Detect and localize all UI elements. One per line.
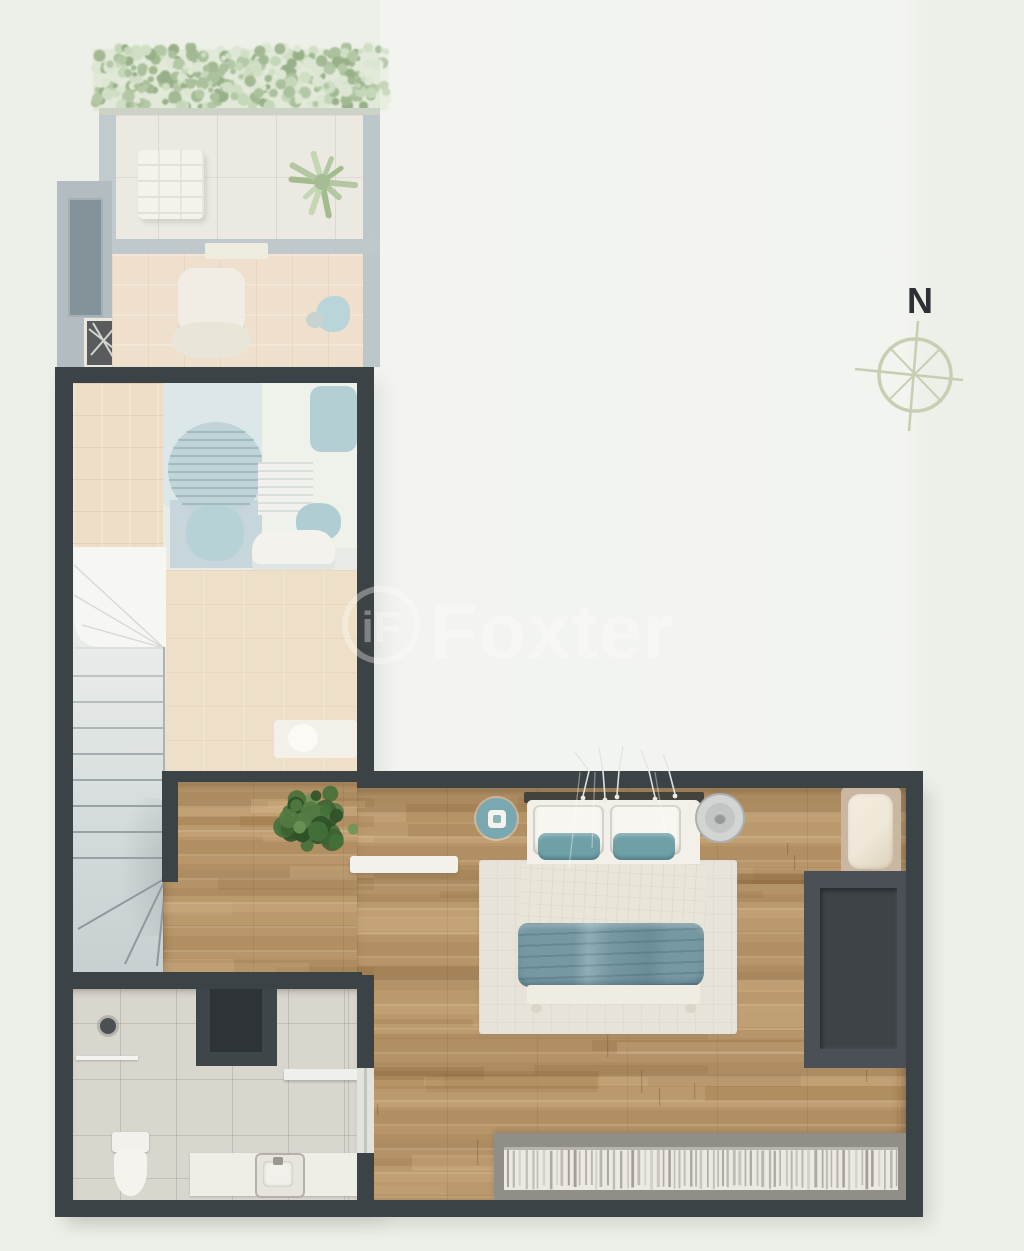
svg-text:N: N xyxy=(907,280,933,321)
svg-text:Foxter: Foxter xyxy=(430,587,674,675)
svg-text:iF: iF xyxy=(361,603,400,652)
